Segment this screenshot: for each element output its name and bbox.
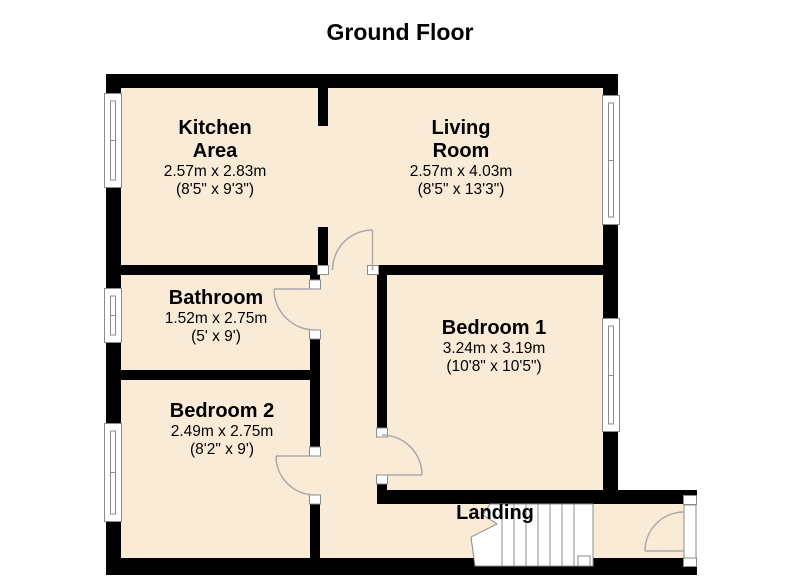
bedroom2-window bbox=[105, 424, 122, 522]
bathroom-name: Bathroom bbox=[165, 287, 268, 310]
living-name-line2: Room bbox=[410, 140, 513, 163]
kitchen-name-line2: Area bbox=[164, 140, 267, 163]
wall-kitchen-living-divider-upper bbox=[318, 88, 328, 126]
entry-door-panel bbox=[684, 505, 696, 558]
bedroom2-dims-imperial: (8'2" x 9') bbox=[170, 441, 274, 459]
jamb-bathroom-top bbox=[310, 280, 321, 289]
page-title: Ground Floor bbox=[327, 19, 474, 46]
room-label-living: Living Room 2.57m x 4.03m (8'5" x 13'3") bbox=[410, 117, 513, 199]
wall-top bbox=[106, 74, 618, 88]
floorplan-drawing bbox=[0, 0, 800, 582]
bathroom-dims-imperial: (5' x 9') bbox=[165, 328, 268, 346]
stair-newel-post bbox=[578, 556, 590, 566]
room-label-bedroom2: Bedroom 2 2.49m x 2.75m (8'2" x 9') bbox=[170, 400, 274, 459]
wall-bedroom1-left-upper bbox=[377, 265, 387, 437]
jamb-entry-top bbox=[684, 496, 697, 505]
jamb-bedroom2-bottom bbox=[310, 495, 321, 504]
living-dims-metric: 2.57m x 4.03m bbox=[410, 163, 513, 181]
landing-name: Landing bbox=[456, 502, 534, 525]
room-label-landing: Landing bbox=[456, 502, 534, 525]
room-label-bedroom1: Bedroom 1 3.24m x 3.19m (10'8" x 10'5") bbox=[442, 317, 546, 376]
wall-bedroom1-top bbox=[378, 265, 603, 275]
wall-bathroom-bedroom2-divider bbox=[121, 370, 310, 380]
kitchen-dims-imperial: (8'5" x 9'3") bbox=[164, 181, 267, 199]
bedroom1-dims-imperial: (10'8" x 10'5") bbox=[442, 358, 546, 376]
bathroom-dims-metric: 1.52m x 2.75m bbox=[165, 310, 268, 328]
jamb-bedroom2-top bbox=[310, 447, 321, 456]
bedroom1-window bbox=[603, 319, 620, 432]
room-label-bathroom: Bathroom 1.52m x 2.75m (5' x 9') bbox=[165, 287, 268, 346]
kitchen-name-line1: Kitchen bbox=[164, 117, 267, 140]
room-label-kitchen: Kitchen Area 2.57m x 2.83m (8'5" x 9'3") bbox=[164, 117, 267, 199]
wall-bathroom-top bbox=[121, 265, 328, 275]
wall-bottom bbox=[106, 558, 697, 575]
kitchen-window bbox=[105, 94, 122, 188]
bedroom2-dims-metric: 2.49m x 2.75m bbox=[170, 423, 274, 441]
jamb-bedroom1-bottom bbox=[377, 475, 388, 484]
jamb-hall-door-left bbox=[318, 266, 329, 275]
bedroom1-name: Bedroom 1 bbox=[442, 317, 546, 340]
wall-landing-top bbox=[377, 490, 697, 504]
jamb-bathroom-bottom bbox=[310, 330, 321, 339]
bathroom-window bbox=[105, 289, 122, 343]
bedroom2-name: Bedroom 2 bbox=[170, 400, 274, 423]
kitchen-dims-metric: 2.57m x 2.83m bbox=[164, 163, 267, 181]
bedroom1-dims-metric: 3.24m x 3.19m bbox=[442, 340, 546, 358]
living-window bbox=[603, 96, 620, 225]
jamb-entry-bottom bbox=[684, 558, 697, 567]
floorplan-page: Ground Floor Kitchen Area 2.57m x 2.83m … bbox=[0, 0, 800, 582]
wall-hall-left-b bbox=[310, 330, 320, 456]
living-dims-imperial: (8'5" x 13'3") bbox=[410, 181, 513, 199]
living-name-line1: Living bbox=[410, 117, 513, 140]
